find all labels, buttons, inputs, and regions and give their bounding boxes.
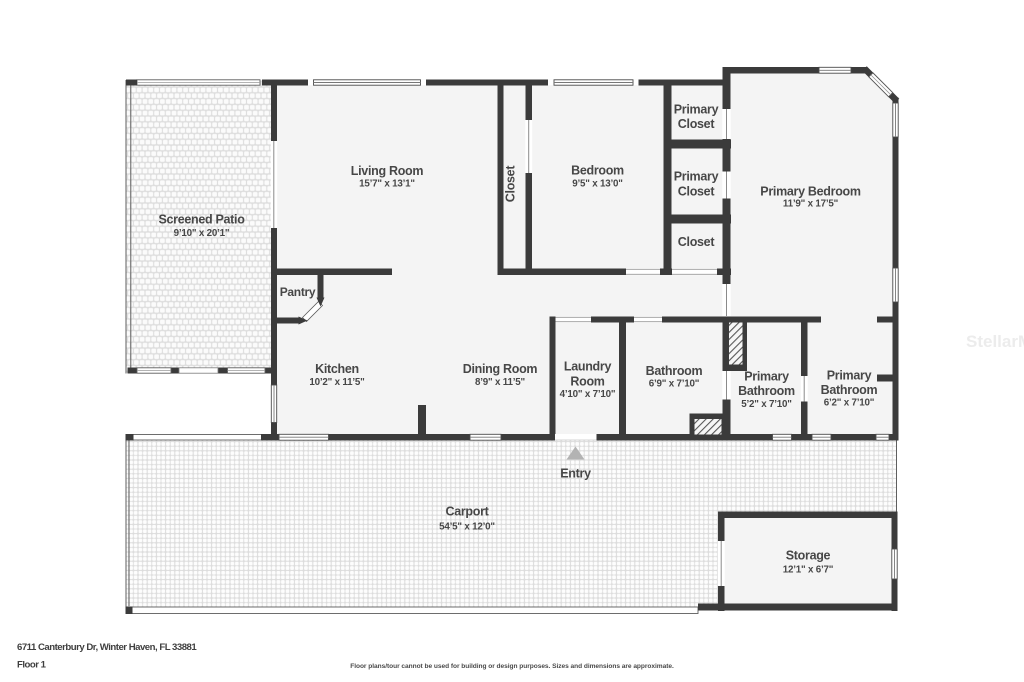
svg-text:Primary: Primary xyxy=(827,369,872,383)
svg-text:Dining Room: Dining Room xyxy=(463,362,538,376)
svg-text:Pantry: Pantry xyxy=(280,285,316,299)
svg-text:Closet: Closet xyxy=(504,165,518,203)
svg-text:6’2" x 7’10": 6’2" x 7’10" xyxy=(824,398,874,409)
svg-text:4’10" x 7’10": 4’10" x 7’10" xyxy=(560,389,616,400)
svg-text:54’5" x 12’0": 54’5" x 12’0" xyxy=(439,522,495,533)
svg-text:StellarMLS: StellarMLS xyxy=(966,332,1024,351)
svg-text:8’9" x 11’5": 8’9" x 11’5" xyxy=(475,377,525,388)
svg-text:Primary: Primary xyxy=(744,370,789,384)
svg-text:5’2" x 7’10": 5’2" x 7’10" xyxy=(741,399,791,410)
svg-text:11’9" x 17’5": 11’9" x 17’5" xyxy=(783,199,838,210)
svg-text:Closet: Closet xyxy=(678,235,716,249)
svg-text:Floor 1: Floor 1 xyxy=(17,660,47,671)
svg-text:Primary: Primary xyxy=(674,103,719,117)
svg-text:Bathroom: Bathroom xyxy=(646,364,703,378)
svg-text:Primary Bedroom: Primary Bedroom xyxy=(760,185,861,199)
svg-text:Floor plans/tour cannot be use: Floor plans/tour cannot be used for buil… xyxy=(350,663,674,670)
svg-text:9’5" x 13’0": 9’5" x 13’0" xyxy=(572,179,622,190)
svg-text:12’1" x 6’7": 12’1" x 6’7" xyxy=(783,565,833,576)
svg-text:Bedroom: Bedroom xyxy=(571,164,624,178)
svg-text:Closet: Closet xyxy=(678,185,716,199)
svg-text:6711 Canterbury Dr, Winter Hav: 6711 Canterbury Dr, Winter Haven, FL 338… xyxy=(17,642,197,653)
svg-text:Room: Room xyxy=(570,375,604,389)
svg-text:10’2" x 11’5": 10’2" x 11’5" xyxy=(309,377,364,388)
svg-text:Kitchen: Kitchen xyxy=(315,362,359,376)
svg-text:Laundry: Laundry xyxy=(564,360,612,374)
svg-text:Bathroom: Bathroom xyxy=(738,384,795,398)
svg-text:Bathroom: Bathroom xyxy=(821,383,878,397)
svg-text:Entry: Entry xyxy=(560,467,591,481)
svg-text:9’10" x 20’1": 9’10" x 20’1" xyxy=(174,228,230,239)
svg-text:Storage: Storage xyxy=(786,549,831,563)
svg-text:Carport: Carport xyxy=(445,505,489,519)
svg-text:Screened Patio: Screened Patio xyxy=(158,213,245,227)
svg-text:Living Room: Living Room xyxy=(351,164,424,178)
svg-text:Closet: Closet xyxy=(678,117,716,131)
svg-text:Primary: Primary xyxy=(674,170,719,184)
svg-text:6’9" x 7’10": 6’9" x 7’10" xyxy=(649,379,699,390)
svg-text:15’7" x 13’1": 15’7" x 13’1" xyxy=(359,179,415,190)
